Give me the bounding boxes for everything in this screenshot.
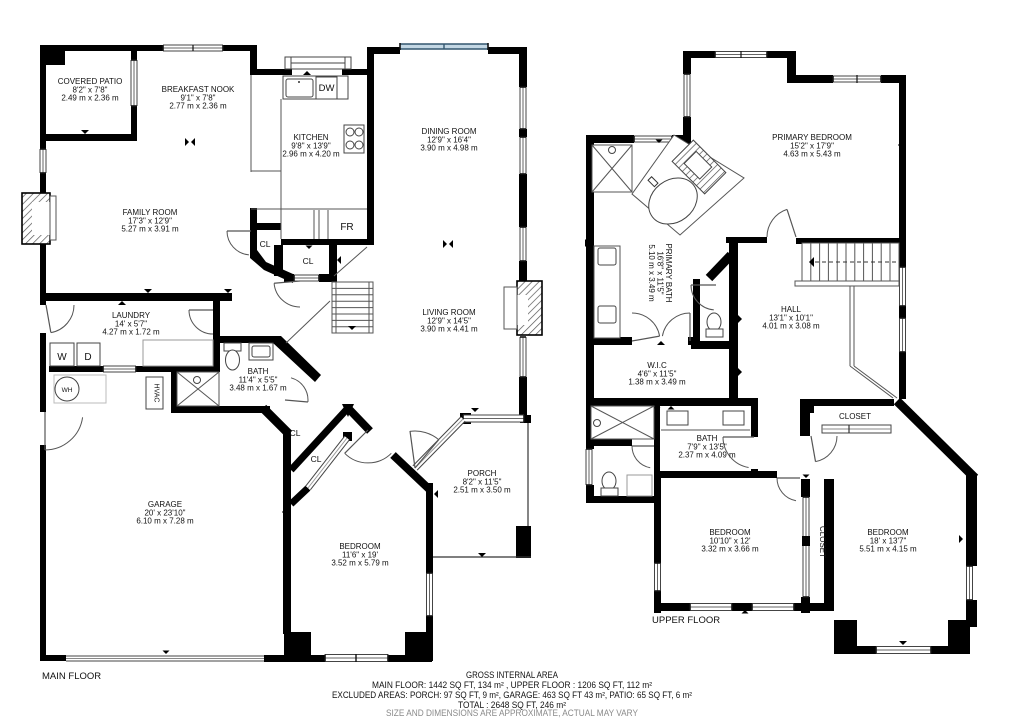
- svg-text:UPPER FLOOR: UPPER FLOOR: [652, 615, 720, 626]
- svg-text:2.37 m x 4.09 m: 2.37 m x 4.09 m: [678, 451, 736, 460]
- svg-text:HVAC: HVAC: [153, 384, 160, 403]
- svg-text:4.27 m x 1.72 m: 4.27 m x 1.72 m: [102, 328, 160, 337]
- svg-text:2.77 m x 2.36 m: 2.77 m x 2.36 m: [169, 102, 227, 111]
- svg-text:6.10 m x 7.28 m: 6.10 m x 7.28 m: [136, 517, 194, 526]
- svg-text:EXCLUDED AREAS: PORCH: 97 SQ F: EXCLUDED AREAS: PORCH: 97 SQ FT, 9 m², G…: [332, 690, 692, 700]
- svg-text:MAIN FLOOR: MAIN FLOOR: [42, 671, 101, 682]
- svg-text:WH: WH: [62, 387, 73, 394]
- svg-text:2.96 m x 4.20 m: 2.96 m x 4.20 m: [282, 150, 340, 159]
- svg-text:1.38 m x 3.49 m: 1.38 m x 3.49 m: [628, 378, 686, 387]
- svg-text:3.48 m x 1.67 m: 3.48 m x 1.67 m: [229, 384, 287, 393]
- svg-text:3.90 m x 4.41 m: 3.90 m x 4.41 m: [420, 325, 478, 334]
- svg-text:W: W: [57, 352, 67, 363]
- svg-text:CLOSET: CLOSET: [818, 526, 827, 558]
- svg-text:MAIN FLOOR: 1442 SQ FT, 134 m²: MAIN FLOOR: 1442 SQ FT, 134 m² , UPPER F…: [372, 680, 652, 690]
- svg-text:3.90 m x 4.98 m: 3.90 m x 4.98 m: [420, 144, 478, 153]
- svg-text:3.52 m x 5.79 m: 3.52 m x 5.79 m: [331, 559, 389, 568]
- svg-text:CL: CL: [260, 239, 271, 249]
- svg-text:D: D: [84, 352, 91, 363]
- svg-text:CL: CL: [303, 256, 314, 266]
- svg-text:GROSS INTERNAL AREA: GROSS INTERNAL AREA: [466, 670, 558, 680]
- svg-text:FR: FR: [340, 222, 353, 233]
- svg-text:4.01 m x 3.08 m: 4.01 m x 3.08 m: [762, 322, 820, 331]
- svg-text:CL: CL: [311, 454, 322, 464]
- svg-text:5.10 m x 3.49 m: 5.10 m x 3.49 m: [647, 244, 656, 302]
- svg-text:2.49 m x 2.36 m: 2.49 m x 2.36 m: [61, 94, 119, 103]
- svg-text:DW: DW: [319, 83, 335, 94]
- svg-text:5.27 m x 3.91 m: 5.27 m x 3.91 m: [121, 225, 179, 234]
- svg-text:3.32 m x 3.66 m: 3.32 m x 3.66 m: [701, 545, 759, 554]
- svg-text:CL: CL: [290, 428, 301, 438]
- svg-text:4.63 m x 5.43 m: 4.63 m x 5.43 m: [783, 150, 841, 159]
- svg-text:2.51 m x 3.50 m: 2.51 m x 3.50 m: [453, 486, 511, 495]
- svg-text:SIZE AND DIMENSIONS ARE APPROX: SIZE AND DIMENSIONS ARE APPROXIMATE, ACT…: [386, 708, 638, 718]
- svg-text:CLOSET: CLOSET: [839, 412, 871, 421]
- svg-text:5.51 m x 4.15 m: 5.51 m x 4.15 m: [859, 545, 917, 554]
